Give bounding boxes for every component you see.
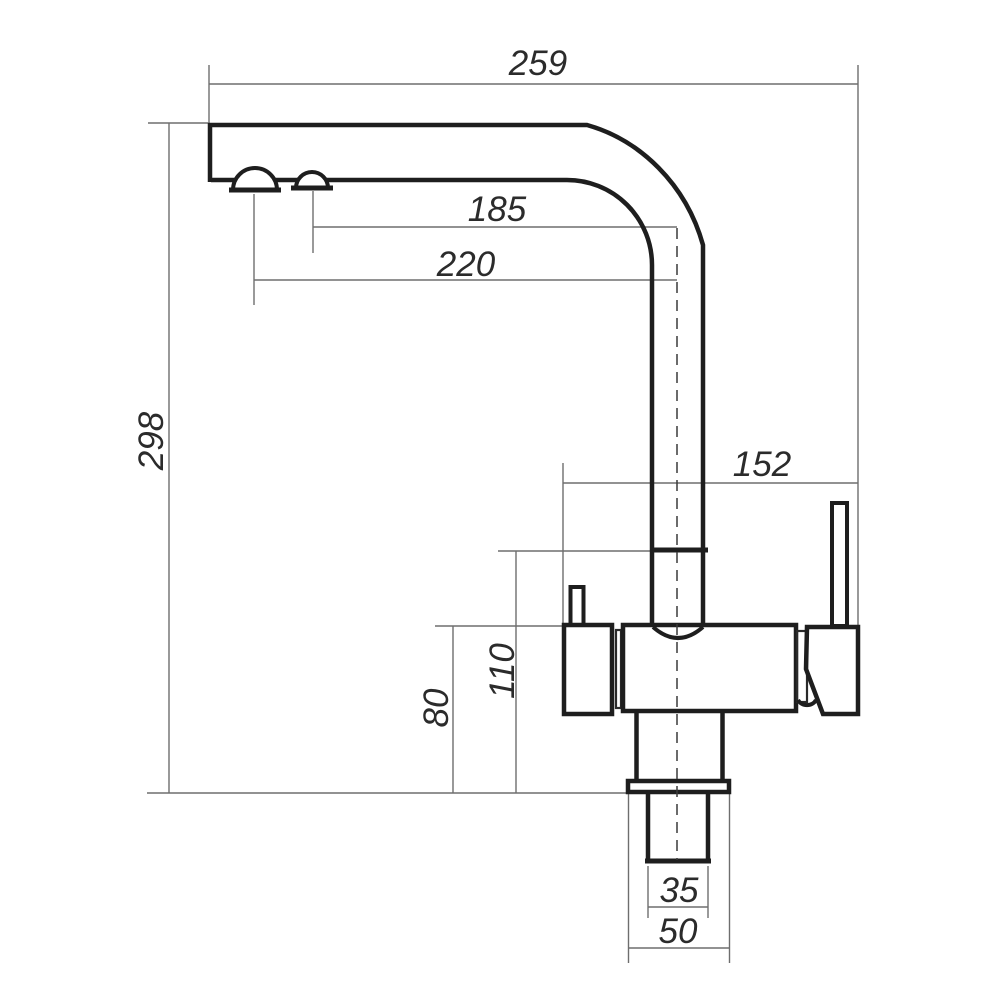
aerator-1-dome	[233, 168, 277, 190]
left-lever	[571, 587, 584, 625]
drawing-page: 259 185 220 298 152 110 80 35 50	[0, 0, 1000, 1000]
dim-label-outlet-2: 185	[468, 190, 527, 229]
faucet-outline-layer	[208, 123, 858, 861]
dim-label-shank-width: 35	[660, 871, 699, 910]
right-lever	[832, 503, 847, 626]
dim-label-body-height: 80	[417, 688, 456, 727]
dim-label-joint-height-group: 110	[483, 643, 522, 699]
faucet-technical-drawing: 259 185 220 298 152 110 80 35 50	[0, 0, 1000, 1000]
dim-label-outlet-1: 220	[436, 245, 496, 284]
dim-label-base-width: 50	[659, 912, 698, 951]
base-flange	[628, 781, 729, 792]
left-connector	[616, 630, 621, 708]
dim-label-body-height-group: 80	[417, 688, 456, 727]
dim-label-joint-height: 110	[483, 643, 522, 699]
spout-inner-edge	[211, 180, 652, 627]
main-body	[623, 625, 796, 711]
dim-label-total-height-group: 298	[132, 411, 171, 471]
dim-label-body-span: 152	[733, 445, 791, 484]
pipe-socket-curve	[653, 627, 703, 638]
left-handle-block	[564, 625, 612, 714]
dim-label-spout-reach: 259	[508, 44, 567, 83]
dim-label-total-height: 298	[132, 411, 171, 471]
